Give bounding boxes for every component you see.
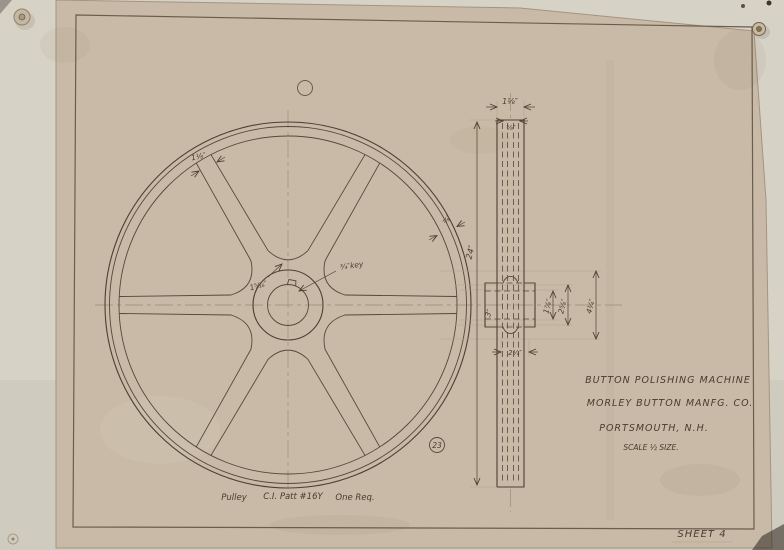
title-line3: PORTSMOUTH, N.H. xyxy=(599,423,709,434)
title-line2: MORLEY BUTTON MANFG. CO. xyxy=(587,398,754,409)
tack-dot-2 xyxy=(767,1,772,6)
title-scale: SCALE ½ SIZE. xyxy=(623,443,678,452)
sheet-number: SHEET 4 xyxy=(677,529,726,540)
drawing-sheet-svg: 23 1⅛″ 1⁵⁄₁₆″ ¾″key ⅞″ xyxy=(0,0,784,550)
tack-dot-1 xyxy=(741,4,745,8)
dim-hub-lower: 2¼″ xyxy=(508,349,522,357)
part-note-name: Pulley xyxy=(221,493,247,503)
part-note-material: C.I. Patt #16Y xyxy=(263,492,323,502)
paper-sheet xyxy=(56,0,772,548)
title-line1: BUTTON POLISHING MACHINE xyxy=(585,375,751,386)
dim-rim-face-width: 1⅛″ xyxy=(502,97,518,106)
part-note: Pulley C.I. Patt #16Y One Req. xyxy=(221,492,374,503)
part-note-quantity: One Req. xyxy=(335,493,374,503)
photo-of-drawing: 23 1⅛″ 1⁵⁄₁₆″ ¾″key ⅞″ xyxy=(0,0,784,550)
balloon-number: 23 xyxy=(432,441,442,450)
dim-rim-inner: ⅝″ xyxy=(506,124,516,132)
